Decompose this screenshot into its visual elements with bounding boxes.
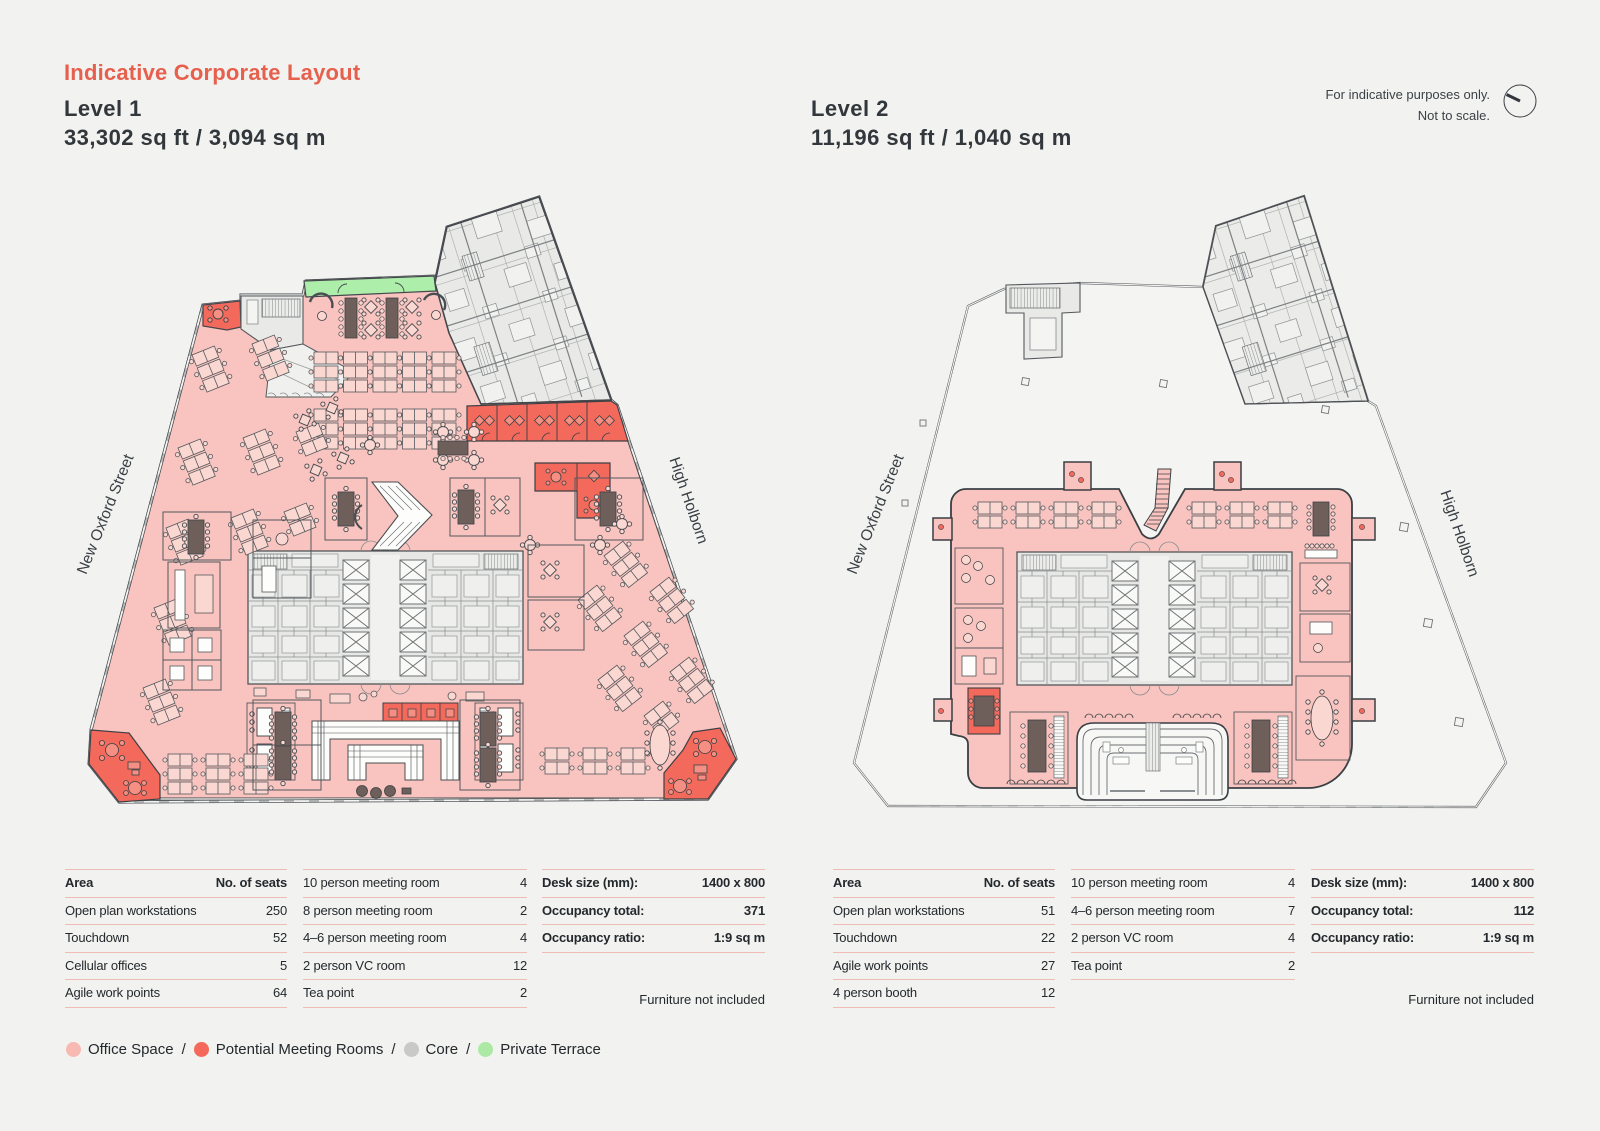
svg-text:High Holborn: High Holborn [1436,488,1482,579]
svg-text:New Oxford Street: New Oxford Street [844,451,908,576]
svg-text:High Holborn: High Holborn [665,455,711,546]
svg-text:New Oxford Street: New Oxford Street [74,451,138,576]
